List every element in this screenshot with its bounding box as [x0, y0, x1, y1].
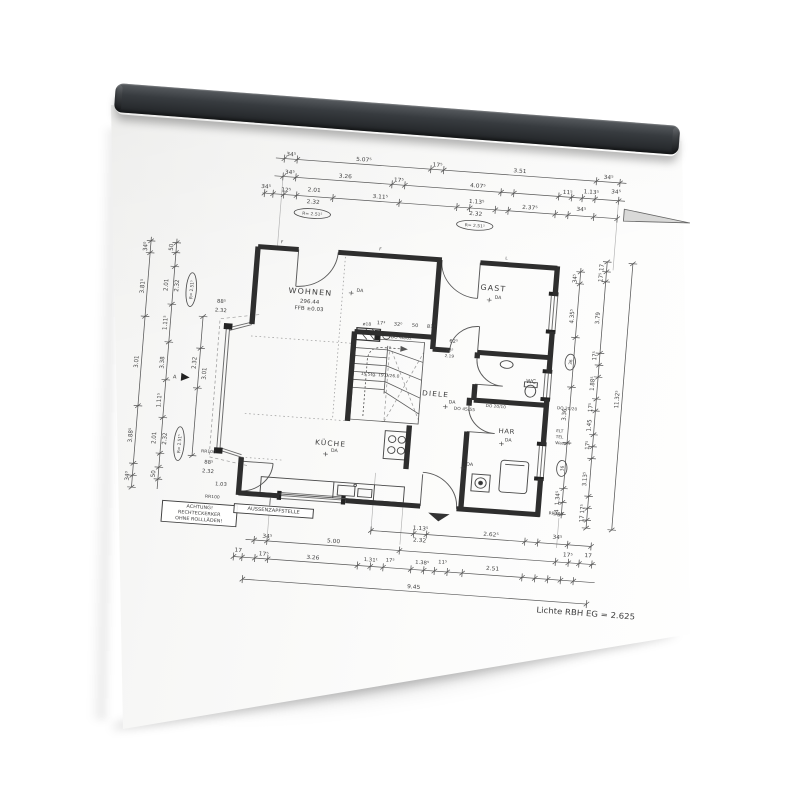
dimension-label: 1.11⁵ — [161, 315, 169, 331]
dimension-label: 5.07⁵ — [356, 156, 373, 164]
dimension-label: 17 — [579, 515, 586, 523]
dimension-label: 2.62⁵ — [483, 531, 500, 539]
dimension-label: 2.32 — [469, 211, 483, 218]
dimension-label: 17 — [234, 548, 242, 554]
dimension-label: 3.79 — [595, 312, 602, 325]
dimension-label: 34⁵ — [285, 169, 296, 176]
dimension-label: 17⁵ — [385, 558, 394, 564]
dimension-label: + — [348, 288, 355, 297]
dimension-label: DO 45/55 — [454, 406, 476, 413]
note-aussenzapfstelle: AUSSENZAPFSTELLE — [234, 504, 314, 519]
dimension-label: 34⁰ — [142, 241, 150, 251]
dimension-label: 11.32⁵ — [613, 390, 622, 409]
dimension-label: 34⁵ — [603, 174, 614, 181]
dimension-label: 1.03 — [215, 481, 227, 488]
dimension-label: 3.01 — [201, 367, 208, 380]
floor-plan-drawing: 34⁵5.07⁵17⁵3.5134⁵34⁵3.2617⁵4.07⁵11⁵1.13… — [85, 115, 728, 715]
dimension-line — [586, 262, 607, 528]
dimension-label: 17⁵ — [587, 402, 595, 412]
oval-label: R= 2.51⁵ — [185, 272, 198, 307]
doors — [238, 247, 512, 512]
dimension-label: 17 — [584, 553, 592, 559]
dimension-label: + — [322, 449, 329, 458]
window-posts — [210, 268, 558, 518]
dimension-label: RR100 — [201, 448, 216, 455]
dimension-label: TEL — [555, 434, 565, 439]
wc-sink — [500, 360, 513, 368]
dimension-line — [561, 268, 581, 518]
rail-end-cap-right — [671, 127, 679, 152]
dimension-label: 34⁵ — [611, 188, 622, 195]
dimension-label: 88⁵ — [446, 347, 454, 352]
dimension-label: 17⁵ — [259, 551, 270, 558]
oval-label: 36 — [556, 460, 568, 477]
dimension-label: Wasser — [555, 440, 571, 446]
dimension-label: 2.01 — [307, 187, 321, 194]
dimension-label: 3.51 — [513, 168, 527, 175]
dimension-label: RR100 — [205, 494, 220, 501]
oval-label: 36 — [565, 354, 577, 371]
dimension-label: 2.01 — [151, 431, 158, 444]
dimension-label: 1.11⁵ — [155, 392, 163, 408]
oval-label: R= 2.51⁵ — [456, 219, 493, 231]
section-marker — [181, 373, 190, 382]
kitchen-sink — [337, 485, 355, 496]
dimension-label: 3.13⁵ — [581, 471, 589, 487]
dimension-label: 3.26 — [306, 555, 320, 562]
dimension-label: 5.00 — [327, 538, 341, 545]
dimension-label: 32⁰ — [394, 322, 403, 328]
dimension-label: A — [173, 374, 178, 380]
dimension-label: 2.32 — [192, 356, 199, 369]
svg-text:R= 2.51⁵: R= 2.51⁵ — [464, 222, 485, 229]
dimension-label: 17⁵ — [394, 177, 405, 184]
dimension-label: 4.07⁵ — [470, 182, 487, 190]
dimension-label: 2.19 — [444, 353, 454, 359]
oval-label: R= 2.51⁵ — [294, 207, 331, 219]
dimension-label: 17⁵ — [584, 440, 592, 450]
dimension-label: 2.37⁵ — [522, 204, 539, 212]
stair-walkline-arrow — [400, 346, 408, 353]
room-label-diele: DIELE — [422, 389, 450, 400]
dimension-label: DA — [448, 399, 456, 405]
dimension-label: 1.13⁵ — [413, 525, 430, 533]
dimension-label: 34⁵ — [286, 151, 297, 158]
dimension-label: 1.13⁵ — [583, 188, 600, 196]
dimension-label: DA — [331, 448, 339, 454]
dimension-label: 1.45 — [586, 419, 593, 432]
dimension-label: 50 — [412, 323, 419, 329]
dimension-label: F — [281, 239, 284, 244]
dimension-label: 17⁵ — [432, 162, 443, 169]
dimension-label: DA — [504, 437, 512, 443]
room-label-har: HAR — [498, 427, 515, 436]
dimension-label: 2.32 — [162, 432, 169, 445]
dimension-label: 34⁵ — [552, 534, 563, 541]
dimension-label: DO 20/10 — [485, 403, 506, 409]
note-leader — [270, 498, 271, 505]
room-label-wc: WC — [526, 379, 536, 385]
dimension-label: 2.32 — [174, 279, 181, 292]
dimension-label: 34⁵ — [576, 206, 587, 213]
svg-text:R= 2.51⁵: R= 2.51⁵ — [188, 280, 196, 299]
dimension-label: 17⁵ — [597, 272, 605, 282]
dimension-label: 4.35⁵ — [568, 308, 576, 324]
dimension-label: 2.32 — [215, 308, 227, 315]
dimension-label: 88⁵ — [217, 299, 226, 305]
dimension-label: ø18 — [362, 321, 371, 327]
footer-note: Lichte RBH EG = 2.625 — [536, 605, 635, 622]
dimension-label: 11⁵ — [562, 189, 573, 196]
dimension-label: 3.36 — [561, 408, 568, 421]
dimension-label: 2.01 — [163, 278, 170, 291]
dimension-label: FFB ±0.03 — [294, 305, 323, 313]
dimension-label: 88⁵ — [204, 460, 213, 466]
dimension-label: 17³ — [376, 320, 385, 326]
labels-layer: 34⁵5.07⁵17⁵3.5134⁵34⁵3.2617⁵4.07⁵11⁵1.13… — [117, 141, 639, 604]
dimension-label: + — [486, 295, 493, 304]
svg-text:36: 36 — [568, 359, 575, 365]
walls — [238, 245, 559, 517]
room-label-gast: GAST — [480, 283, 507, 294]
slope-wedge — [623, 209, 690, 226]
dimension-label: 15 Stg. 19.0/26.0 — [360, 371, 400, 380]
dimension-label: 34⁰ — [124, 470, 132, 480]
rail-end-cap-left — [115, 85, 123, 110]
dimension-label: DA — [356, 288, 364, 294]
dimension-label: DA — [494, 295, 502, 301]
dimension-label: 34⁵ — [571, 273, 579, 283]
dimension-label: 2.32 — [413, 538, 427, 545]
dimension-label: 3.88⁵ — [127, 427, 135, 443]
dimension-label: 50 — [169, 243, 176, 251]
svg-text:R= 2.51⁵: R= 2.51⁵ — [302, 211, 323, 218]
room-label-kueche: KÜCHE — [315, 438, 347, 449]
floor-plan-svg: 34⁵5.07⁵17⁵3.5134⁵34⁵3.2617⁵4.07⁵11⁵1.13… — [85, 115, 728, 715]
dimension-label: 3.11⁵ — [372, 193, 389, 201]
dimension-line — [192, 317, 203, 456]
dimension-label: 62⁵ — [449, 339, 458, 345]
windows — [213, 273, 558, 518]
dimension-label: 1.13⁵ — [469, 198, 486, 206]
dimension-label: 17⁵ — [563, 552, 574, 559]
dimension-line — [233, 556, 594, 582]
svg-text:36: 36 — [559, 465, 566, 471]
dimension-label: 17⁵ — [591, 350, 599, 360]
dimension-label: 296.44 — [300, 299, 320, 306]
dimension-label: 81⁵ — [427, 324, 436, 330]
dimension-label: 34⁵ — [262, 533, 273, 540]
dimension-label: 3.38 — [159, 356, 166, 369]
dimension-label: 50 — [151, 470, 158, 478]
fixtures — [260, 344, 539, 512]
dimension-label: 1.38⁵ — [415, 560, 429, 567]
dimension-label: ELT — [556, 428, 564, 433]
dimension-label: 34⁵ — [261, 183, 272, 190]
dimension-label: 2.32 — [202, 468, 214, 475]
dimension-label: 11⁵ — [438, 559, 447, 565]
product-photo-scene: 34⁵5.07⁵17⁵3.5134⁵34⁵3.2617⁵4.07⁵11⁵1.13… — [0, 0, 800, 800]
note-achtung: ACHTUNG!RECHTECKERKEROHNE ROLLLÄDEN! — [161, 500, 237, 526]
dimension-label: 1.31¹ — [363, 557, 377, 564]
dimension-label: DA — [466, 462, 474, 468]
dimension-label: 12⁵ — [281, 187, 292, 194]
dimension-label: 3.01 — [134, 355, 141, 368]
dimension-label: 17 — [599, 264, 606, 272]
dimension-label: 34 — [554, 509, 561, 517]
room-label-wohnen: WOHNEN — [288, 286, 332, 298]
dimension-line — [242, 579, 586, 604]
dimension-label: 3.26 — [339, 174, 353, 181]
dimension-label: F — [379, 247, 382, 252]
dimension-label: 1.34⁵ — [554, 490, 562, 506]
dimension-label: 17⁵ — [579, 503, 587, 513]
dimension-label: 9.45 — [407, 584, 421, 591]
dimension-label: L — [505, 256, 508, 261]
dimension-label: 2.51 — [486, 566, 500, 573]
dimension-label: 2.32 — [306, 199, 320, 206]
entrance-marker — [428, 513, 450, 522]
dimension-label: 3.81⁵ — [138, 278, 146, 294]
dimension-label: 1.88⁵ — [589, 376, 597, 392]
oval-label: R= 2.51⁵ — [173, 426, 186, 461]
svg-text:R= 2.51⁵: R= 2.51⁵ — [176, 434, 184, 453]
